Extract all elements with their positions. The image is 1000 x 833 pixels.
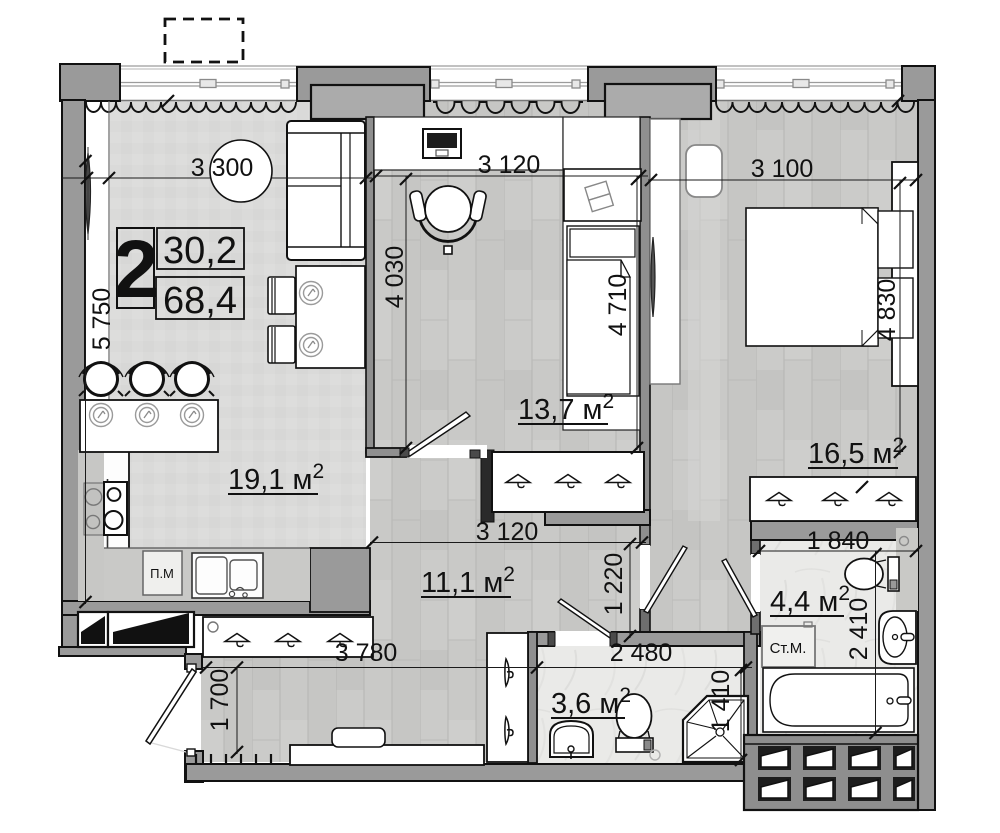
svg-text:П.М: П.М (150, 566, 174, 581)
svg-text:68,4: 68,4 (163, 280, 237, 322)
svg-text:4,4 м2: 4,4 м2 (770, 582, 850, 618)
svg-text:1 840: 1 840 (807, 527, 870, 555)
svg-text:3,6 м2: 3,6 м2 (551, 684, 631, 720)
svg-text:4 030: 4 030 (381, 246, 409, 309)
svg-text:2: 2 (113, 224, 159, 315)
svg-text:2 480: 2 480 (610, 639, 673, 667)
svg-text:30,2: 30,2 (163, 230, 237, 272)
svg-text:11,1 м2: 11,1 м2 (421, 563, 515, 599)
svg-text:13,7 м2: 13,7 м2 (518, 390, 614, 426)
svg-text:3 120: 3 120 (476, 518, 539, 546)
svg-text:19,1 м2: 19,1 м2 (228, 460, 324, 496)
svg-text:Ст.М.: Ст.М. (770, 640, 807, 657)
svg-text:16,5 м2: 16,5 м2 (808, 434, 904, 470)
svg-text:1 220: 1 220 (600, 553, 628, 616)
svg-text:3 120: 3 120 (478, 151, 541, 179)
svg-text:3 300: 3 300 (191, 154, 254, 182)
svg-text:1 700: 1 700 (206, 669, 234, 732)
svg-text:3 780: 3 780 (335, 639, 398, 667)
svg-text:1 410: 1 410 (707, 670, 735, 733)
svg-text:3 100: 3 100 (751, 155, 814, 183)
svg-text:2 410: 2 410 (845, 598, 873, 661)
svg-text:4 710: 4 710 (604, 274, 632, 337)
svg-text:4 830: 4 830 (873, 279, 901, 342)
svg-text:5 750: 5 750 (88, 288, 116, 351)
